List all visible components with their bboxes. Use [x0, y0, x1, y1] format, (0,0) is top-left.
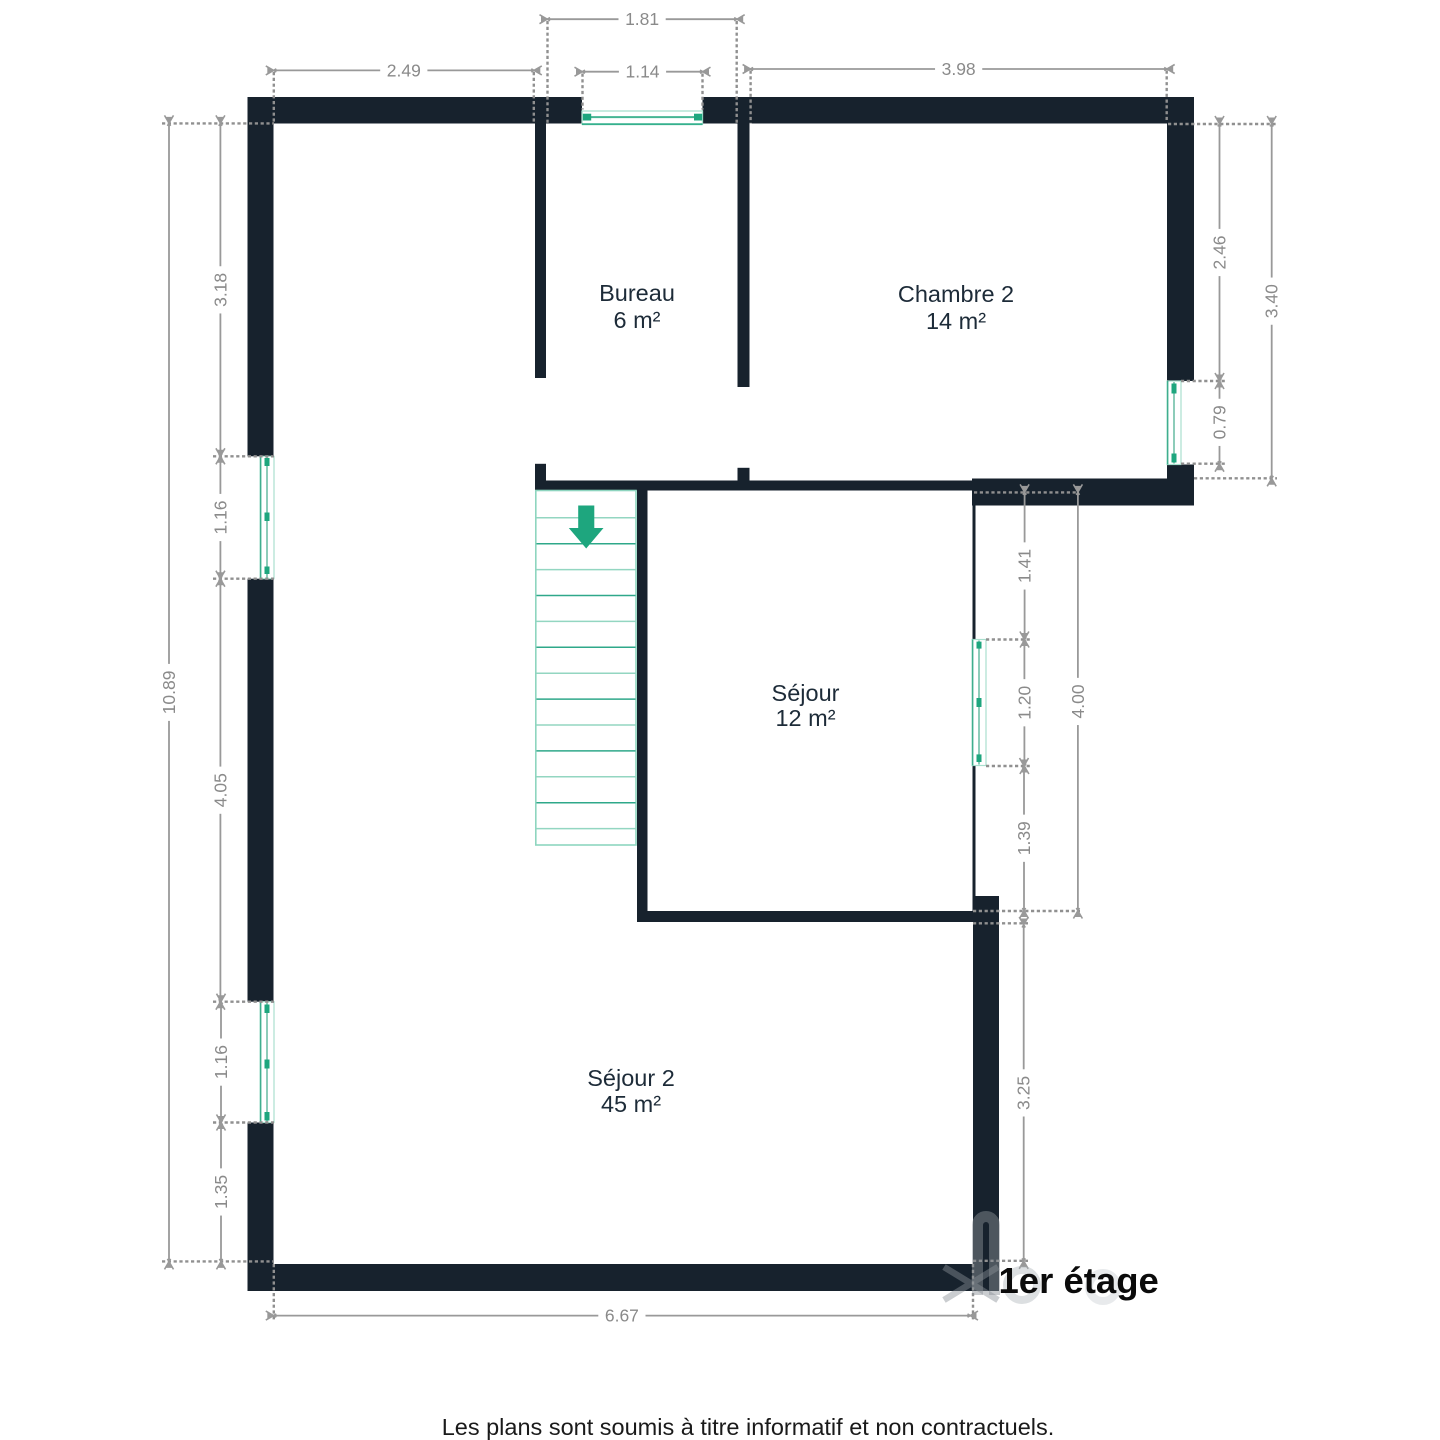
- svg-text:3.40: 3.40: [1262, 284, 1282, 318]
- svg-text:Séjour 2: Séjour 2: [587, 1065, 675, 1091]
- svg-text:Bureau: Bureau: [599, 280, 675, 306]
- svg-text:3.18: 3.18: [210, 273, 230, 307]
- svg-text:1.81: 1.81: [625, 9, 659, 29]
- svg-text:10.89: 10.89: [159, 671, 179, 715]
- svg-text:1.16: 1.16: [210, 500, 230, 534]
- svg-text:0.79: 0.79: [1209, 405, 1229, 439]
- svg-text:1.41: 1.41: [1015, 549, 1035, 583]
- svg-text:6.67: 6.67: [605, 1306, 639, 1326]
- svg-text:4.05: 4.05: [210, 773, 230, 807]
- svg-text:6 m²: 6 m²: [614, 307, 661, 333]
- svg-text:2.46: 2.46: [1209, 235, 1229, 269]
- svg-text:Séjour: Séjour: [772, 680, 840, 706]
- svg-text:Les plans sont soumis à titre: Les plans sont soumis à titre informatif…: [442, 1414, 1055, 1440]
- svg-text:1.20: 1.20: [1014, 685, 1034, 719]
- svg-text:1er étage: 1er étage: [999, 1260, 1159, 1301]
- svg-text:3.25: 3.25: [1014, 1076, 1034, 1110]
- svg-text:1.14: 1.14: [625, 62, 659, 82]
- svg-text:2.49: 2.49: [387, 60, 421, 80]
- svg-text:45 m²: 45 m²: [601, 1091, 661, 1117]
- svg-text:4.00: 4.00: [1068, 684, 1088, 718]
- svg-text:3.98: 3.98: [942, 59, 976, 79]
- svg-text:12 m²: 12 m²: [775, 705, 835, 731]
- svg-text:1.39: 1.39: [1014, 821, 1034, 855]
- svg-text:14 m²: 14 m²: [926, 308, 986, 334]
- svg-text:Chambre 2: Chambre 2: [898, 281, 1014, 307]
- svg-text:1.35: 1.35: [211, 1175, 231, 1209]
- svg-text:1.16: 1.16: [211, 1045, 231, 1079]
